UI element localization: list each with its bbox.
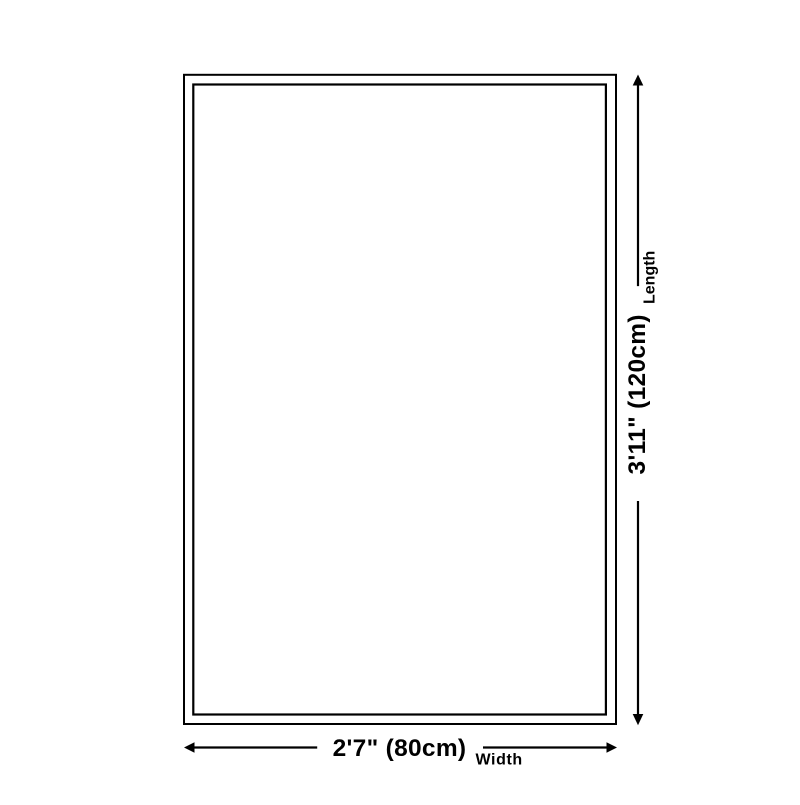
svg-text:2'7" (80cm): 2'7" (80cm) — [333, 735, 467, 762]
svg-text:Width: Width — [476, 752, 523, 769]
svg-text:3'11" (120cm): 3'11" (120cm) — [624, 314, 651, 474]
svg-text:Length: Length — [641, 251, 658, 304]
